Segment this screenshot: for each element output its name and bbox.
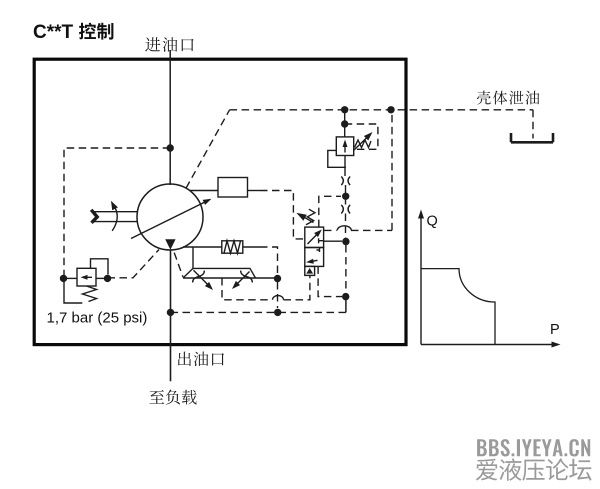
svg-text:C**T: C**T	[33, 22, 74, 43]
svg-text:P: P	[550, 322, 560, 338]
svg-text:Q: Q	[427, 214, 438, 230]
svg-text:1,7 bar (25 psi): 1,7 bar (25 psi)	[47, 310, 148, 327]
